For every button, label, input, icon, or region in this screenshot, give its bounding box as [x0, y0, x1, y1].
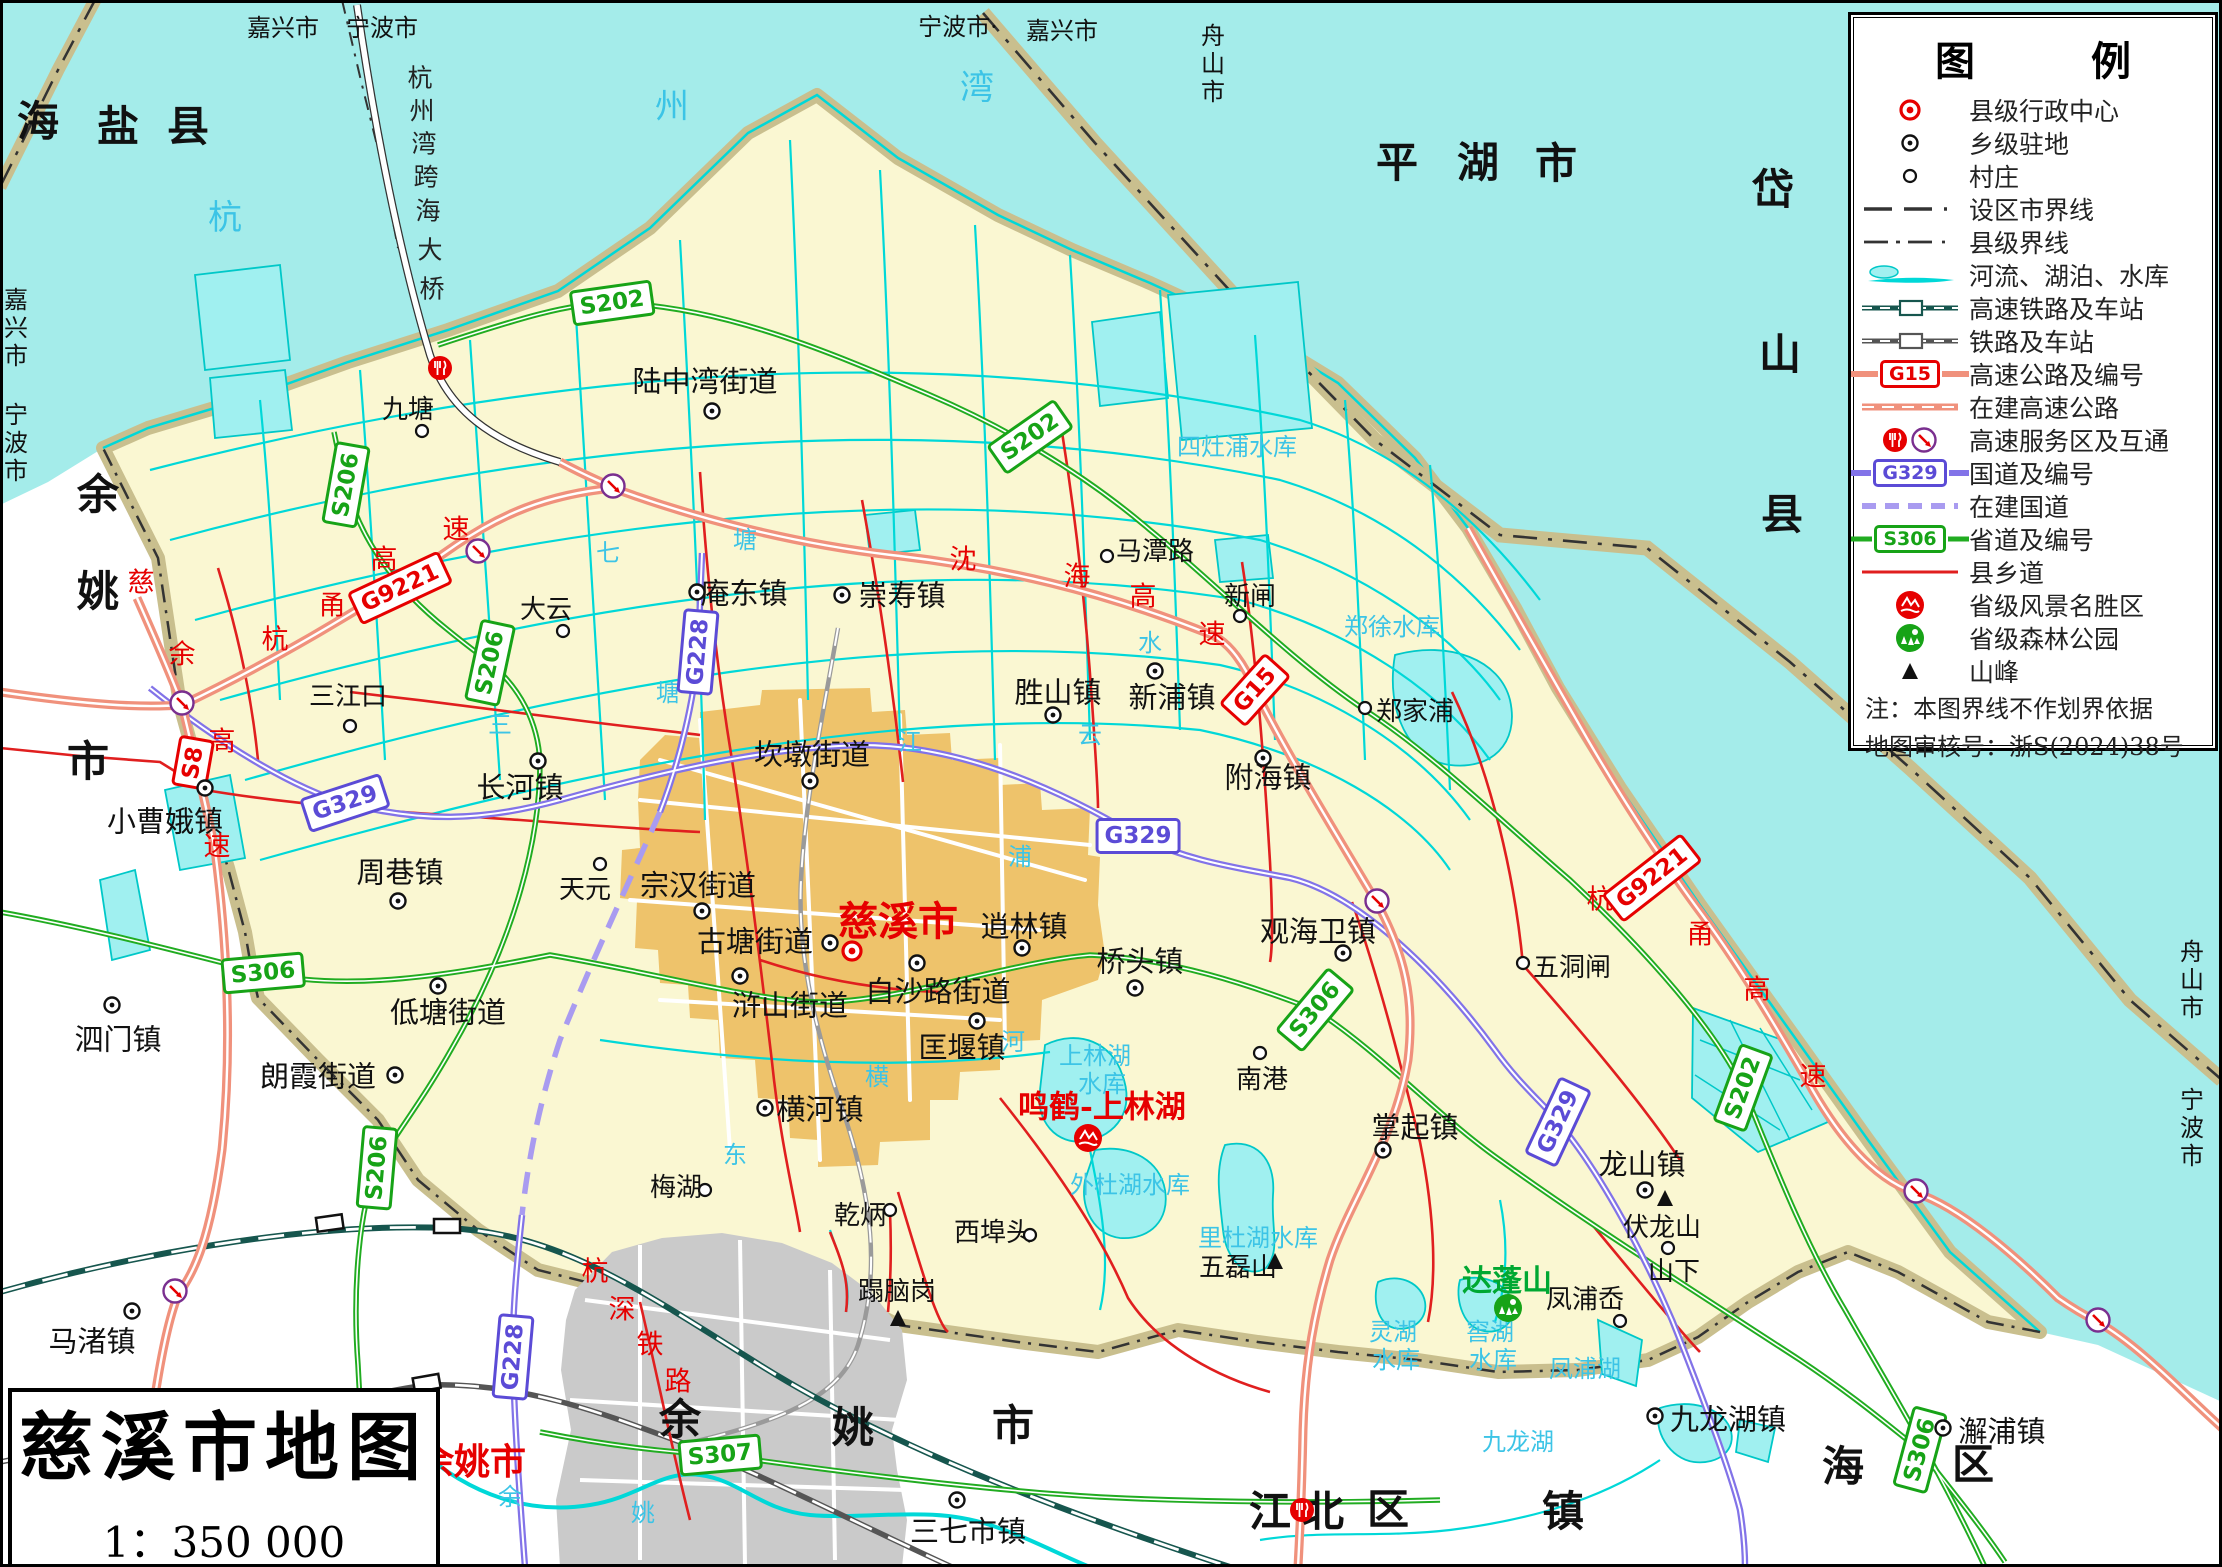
legend-row: 在建高速公路 [1851, 390, 2215, 423]
legend-row: G15高速公路及编号 [1851, 357, 2215, 390]
legend-label: 在建高速公路 [1969, 389, 2119, 425]
legend-label: 省级风景名胜区 [1969, 587, 2144, 623]
legend-label: 山峰 [1969, 653, 2019, 689]
legend-note-1: 注：本图界线不作划界依据 [1851, 693, 2215, 725]
legend-label: 省道及编号 [1969, 521, 2094, 557]
legend-label: 河流、湖泊、水库 [1969, 257, 2169, 293]
exp-legend-icon: G15 [1851, 360, 1969, 388]
legend-row: 乡级驻地 [1851, 126, 2215, 159]
legend-label: 村庄 [1969, 158, 2019, 194]
legend-label: 铁路及车站 [1969, 323, 2094, 359]
legend-label: 县级行政中心 [1969, 92, 2119, 128]
title-block: 慈溪市地图 1：350 000 [8, 1388, 440, 1567]
legend-label: 乡级驻地 [1969, 125, 2069, 161]
legend-row: 在建国道 [1851, 489, 2215, 522]
legend-row: 省级森林公园 [1851, 621, 2215, 654]
cityline-legend-icon [1851, 204, 1969, 214]
legend-panel: 图 例 县级行政中心乡级驻地村庄设区市界线县级界线河流、湖泊、水库高速铁路及车站… [1848, 12, 2218, 751]
peak-legend-icon [1851, 662, 1969, 680]
legend-label: 县级界线 [1969, 224, 2069, 260]
legend-note-2: 地图审核号：浙S(2024)38号 [1851, 731, 2215, 763]
legend-label: 国道及编号 [1969, 455, 2094, 491]
legend-badge-G15: G15 [1880, 360, 1940, 388]
nat-legend-icon: G329 [1851, 459, 1969, 487]
town-legend-icon [1851, 132, 1969, 154]
expuc-legend-icon [1851, 402, 1969, 412]
legend-row: 县级界线 [1851, 225, 2215, 258]
legend-row: 河流、湖泊、水库 [1851, 258, 2215, 291]
map-title: 慈溪市地图 [19, 1388, 429, 1495]
legend-badge-G329: G329 [1873, 459, 1946, 487]
legend-row: 村庄 [1851, 159, 2215, 192]
legend-badge-S306: S306 [1874, 525, 1945, 553]
map-scale: 1：350 000 [103, 1509, 345, 1567]
legend-row: S306省道及编号 [1851, 522, 2215, 555]
legend-items: 县级行政中心乡级驻地村庄设区市界线县级界线河流、湖泊、水库高速铁路及车站铁路及车… [1851, 93, 2215, 687]
legend-row: 高速服务区及互通 [1851, 423, 2215, 456]
natuc-legend-icon [1851, 501, 1969, 511]
legend-title: 图 例 [1851, 15, 2215, 93]
legend-label: 在建国道 [1969, 488, 2069, 524]
rail-legend-icon [1851, 332, 1969, 350]
legend-row: 设区市界线 [1851, 192, 2215, 225]
legend-row: 县乡道 [1851, 555, 2215, 588]
legend-label: 设区市界线 [1969, 191, 2094, 227]
county-legend-icon [1851, 95, 1969, 125]
legend-row: 高速铁路及车站 [1851, 291, 2215, 324]
scenic-legend-icon [1851, 588, 1969, 622]
water-legend-icon [1851, 264, 1969, 286]
croad-legend-icon [1851, 568, 1969, 576]
legend-label: 高速服务区及互通 [1969, 422, 2169, 458]
legend-row: 省级风景名胜区 [1851, 588, 2215, 621]
legend-label: 县乡道 [1969, 554, 2044, 590]
legend-row: 铁路及车站 [1851, 324, 2215, 357]
cixi-city-map: 海盐县嘉兴市宁波市嘉兴市宁波市余姚市宁波市·嘉兴市舟山市平湖市岱山县舟山市宁波市… [0, 0, 2222, 1567]
village-legend-icon [1851, 167, 1969, 185]
service-legend-icon [1851, 425, 1969, 455]
hsr-legend-icon [1851, 299, 1969, 317]
legend-row: 山峰 [1851, 654, 2215, 687]
prov-legend-icon: S306 [1851, 525, 1969, 553]
legend-row: G329国道及编号 [1851, 456, 2215, 489]
forest-legend-icon [1851, 621, 1969, 655]
legend-row: 县级行政中心 [1851, 93, 2215, 126]
legend-label: 省级森林公园 [1969, 620, 2119, 656]
legend-label: 高速铁路及车站 [1969, 290, 2144, 326]
countyline-legend-icon [1851, 237, 1969, 247]
legend-label: 高速公路及编号 [1969, 356, 2144, 392]
